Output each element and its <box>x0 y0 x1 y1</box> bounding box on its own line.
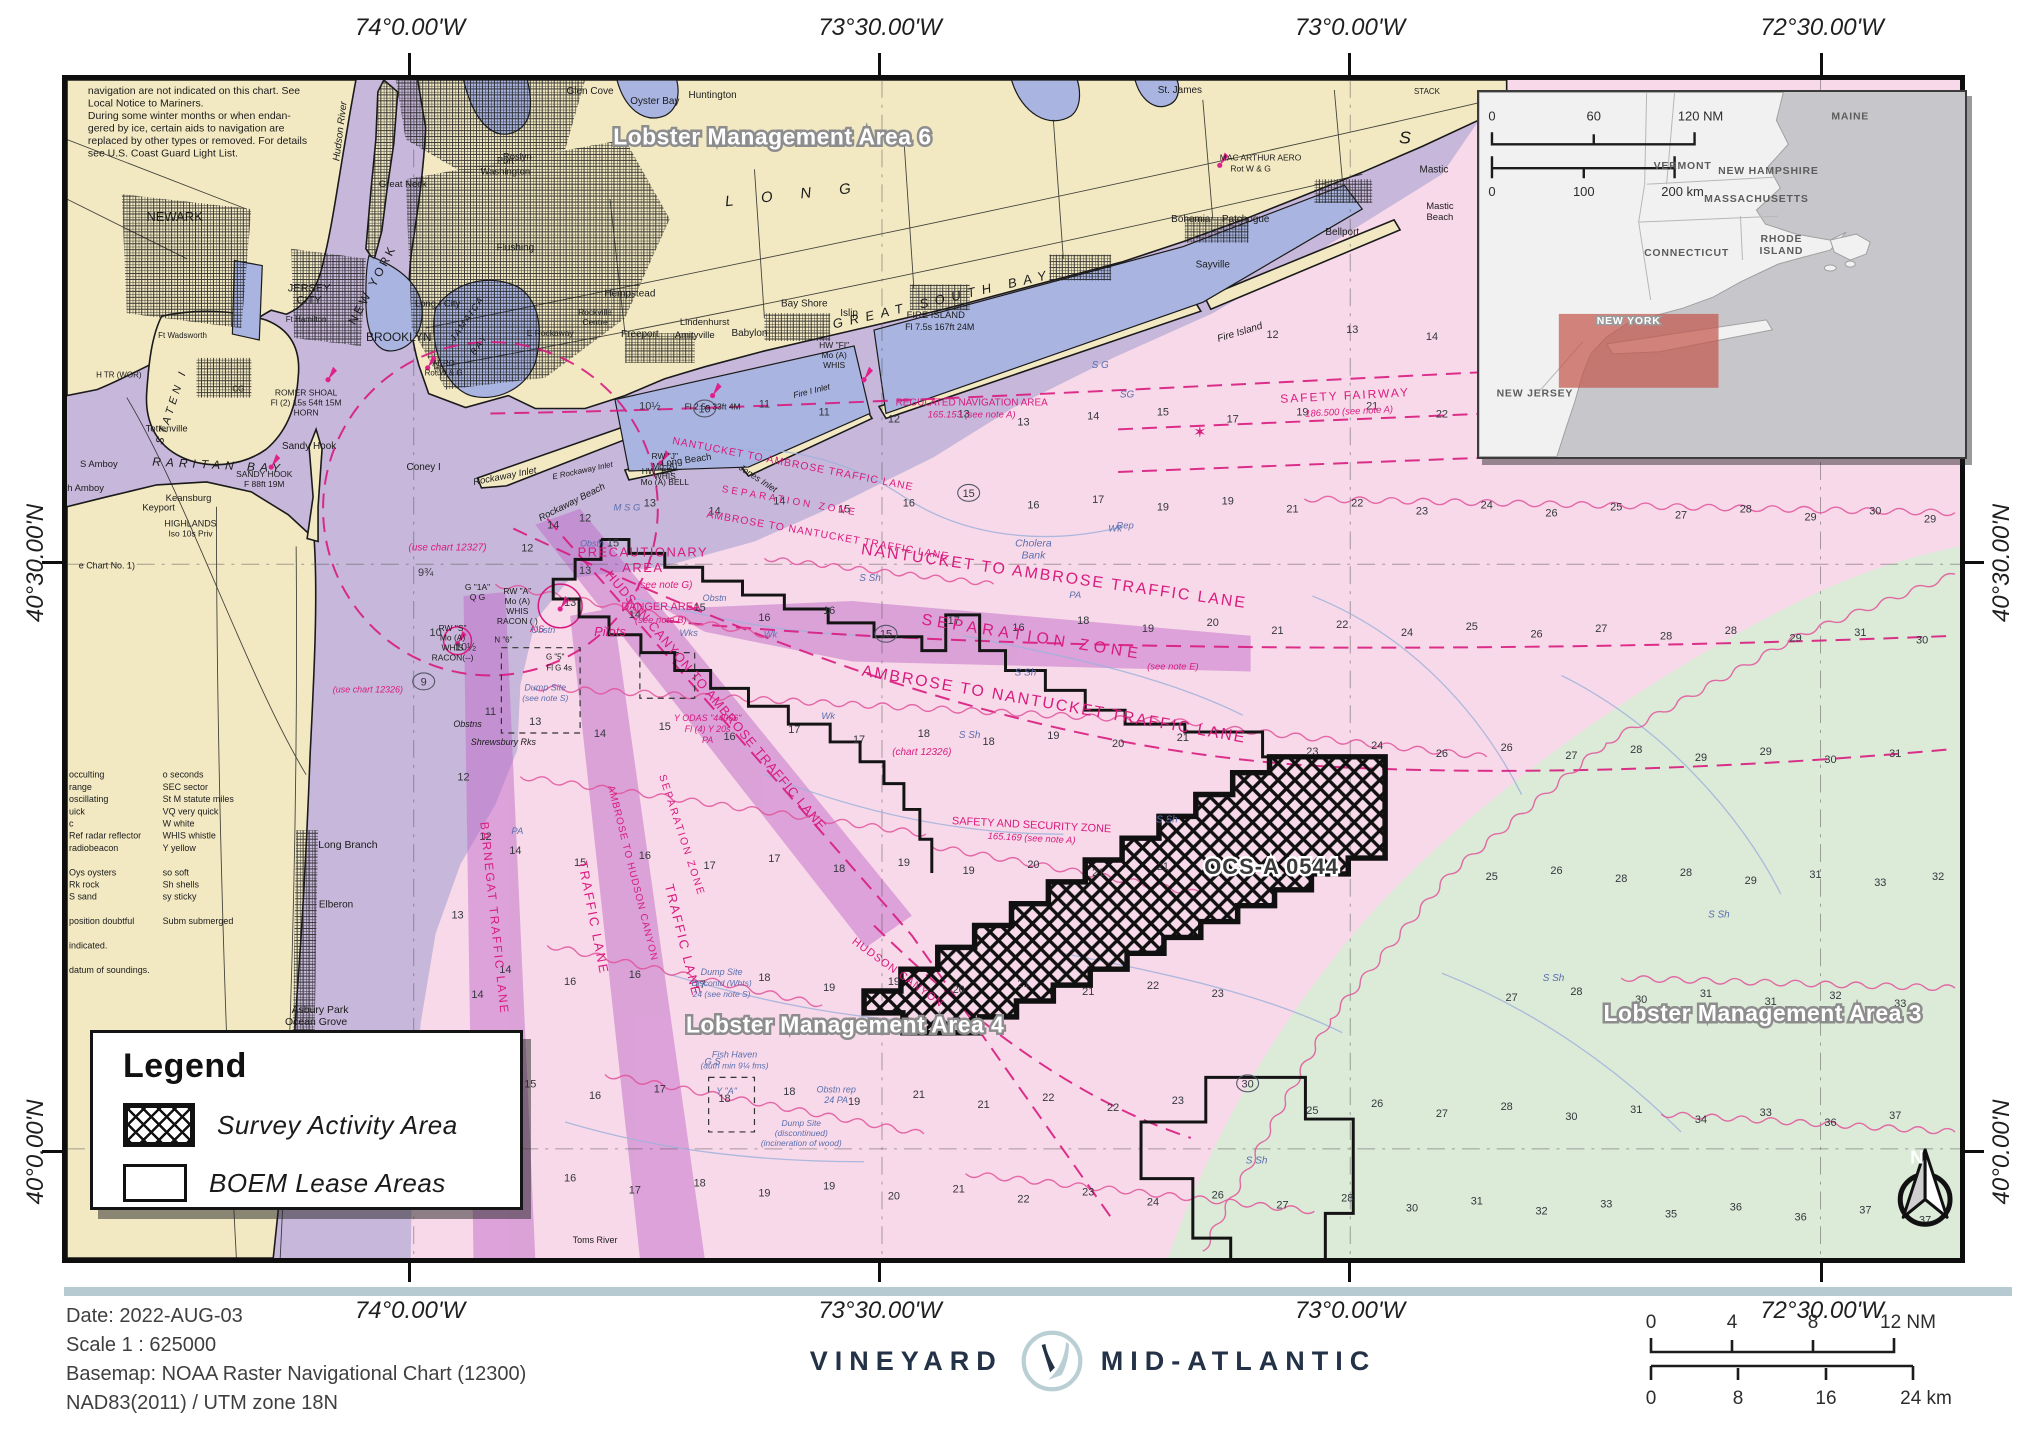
map-label: S Sh <box>959 730 981 741</box>
map-label: WHIS <box>823 360 845 370</box>
map-label: Lindenhurst <box>680 317 730 328</box>
sounding: 11 <box>485 706 496 718</box>
margin-note: Y yellow <box>163 843 197 853</box>
sounding: 14 <box>547 520 559 532</box>
inset-map: 0 60 120 NM 0 100 200 km MAINEVERMONTNEW… <box>1477 90 1967 459</box>
sounding: 28 <box>1725 625 1737 637</box>
map-label: Mo (A) <box>505 596 531 606</box>
map-label: Iso 10s Priv <box>168 529 213 539</box>
sounding: 29 <box>1790 633 1802 645</box>
sounding: 28 <box>1740 504 1752 516</box>
sounding: 19 <box>823 982 835 994</box>
sounding: 12 <box>457 772 469 784</box>
beacon-icon <box>558 606 563 611</box>
margin-note: occulting <box>69 770 104 780</box>
lon-label-bottom-2: 73°30.00'W <box>818 1297 942 1325</box>
inset-state-label: MASSACHUSETTS <box>1704 194 1809 205</box>
map-label: Perth Amboy <box>67 483 104 494</box>
chart-note-line: Local Notice to Mariners. <box>88 98 204 109</box>
map-label: Wk <box>821 711 836 722</box>
sounding: 17 <box>788 724 800 736</box>
lon-label-top-2: 73°30.00'W <box>818 14 942 42</box>
sounding: 21 <box>1157 861 1169 873</box>
map-label: Obstns <box>453 719 482 729</box>
map-label: STACK <box>1414 87 1441 96</box>
svg-text:24 km: 24 km <box>1900 1388 1952 1409</box>
map-label: Fl (4) Y 20s <box>685 724 731 734</box>
sounding: 31 <box>1809 869 1821 881</box>
map-label: Fl 2.5s 33ft 4M <box>685 401 741 411</box>
svg-text:0: 0 <box>1488 108 1495 123</box>
sounding: 30 <box>1565 1111 1577 1123</box>
sounding: 19 <box>963 865 975 877</box>
sounding: 14 <box>1426 331 1438 343</box>
beacon-icon <box>710 393 715 398</box>
map-label: Dump Site <box>524 682 566 692</box>
sounding: 31 <box>1471 1195 1483 1207</box>
map-label: (discontinued) <box>775 1128 828 1138</box>
margin-note: Oys oysters <box>69 867 117 877</box>
map-label: Toms River <box>573 1235 618 1245</box>
lat-label-right-2: 40°0.00'N <box>1988 1100 2016 1205</box>
map-label: AREA <box>622 560 663 575</box>
margin-note: uick <box>69 806 85 816</box>
map-label: Obstn <box>703 593 727 603</box>
sounding: 16 <box>629 969 641 981</box>
svg-text:100: 100 <box>1573 184 1595 199</box>
map-label: S Amboy <box>80 459 118 470</box>
sounding: 28 <box>1615 873 1627 885</box>
sounding: 22 <box>1351 498 1363 510</box>
sounding: 32 <box>1932 871 1944 883</box>
map-label: Mo (A) BELL <box>641 477 690 487</box>
margin-note: Sh shells <box>163 880 200 890</box>
sounding: 20 <box>953 984 965 996</box>
map-label: Obstn rep <box>816 1084 855 1094</box>
sounding: 16 <box>639 850 651 862</box>
margin-note: position doubtful <box>69 916 134 926</box>
sounding: 29 <box>1745 875 1757 887</box>
sounding: 18 <box>918 728 930 740</box>
chart-note-line: During some winter months or when endan- <box>88 111 291 122</box>
sounding: 37 <box>1889 1110 1901 1122</box>
sounding: 12 <box>1266 329 1278 341</box>
map-label: MAC ARTHUR AERO <box>1220 152 1302 162</box>
sounding: 17 <box>654 1083 666 1095</box>
map-label: Fl 7.5s 167ft 24M <box>905 322 974 332</box>
map-label: JERSEY <box>288 282 331 294</box>
sounding: 23 <box>1416 506 1428 518</box>
inset-state-label: ISLAND <box>1759 246 1803 257</box>
svg-text:200 km: 200 km <box>1661 184 1704 199</box>
sounding: 23 <box>1212 988 1224 1000</box>
map-label: Sandy Hook <box>282 441 336 452</box>
sounding: 36 <box>1794 1211 1806 1223</box>
map-label: Y ODAS "44066" <box>674 713 742 723</box>
margin-note: sy sticky <box>163 892 197 902</box>
survey-area-swatch <box>123 1103 195 1147</box>
map-label: Bay Shore <box>781 298 828 309</box>
map-label: S G <box>1092 360 1109 371</box>
map-label: Asbury Park <box>292 1005 350 1016</box>
map-label: Roslyn <box>503 151 532 162</box>
north-arrow-label: N <box>1910 1148 1924 1169</box>
sounding: 28 <box>1630 744 1642 756</box>
sounding: 18 <box>758 972 770 984</box>
sounding: 24 <box>1481 500 1493 512</box>
sounding: 37 <box>1859 1204 1871 1216</box>
map-label: Beach <box>1427 212 1454 223</box>
lon-label-top-4: 72°30.00'W <box>1760 14 1884 42</box>
margin-note: S sand <box>69 892 97 902</box>
margin-note: so soft <box>163 867 190 877</box>
sounding: 13 <box>579 565 591 577</box>
sounding: 13 <box>1346 324 1358 336</box>
svg-text:16: 16 <box>1815 1388 1836 1409</box>
sounding: 13 <box>644 498 656 510</box>
sounding: 11 <box>819 406 830 418</box>
sounding: 28 <box>1341 1192 1353 1204</box>
map-label: S Sh <box>1543 973 1565 984</box>
margin-note: oscillating <box>69 794 108 804</box>
sounding: 31 <box>1630 1104 1642 1116</box>
map-label: Mastic <box>1426 201 1454 212</box>
map-label: Bohemia <box>1171 214 1211 225</box>
sounding: 27 <box>1276 1199 1288 1211</box>
map-label: RACON(--) <box>432 653 474 663</box>
sounding: 13 <box>529 716 541 728</box>
svg-text:12 NM: 12 NM <box>1880 1314 1936 1333</box>
sounding: 19 <box>1222 496 1234 508</box>
lon-label-top-3: 73°0.00'W <box>1295 14 1405 42</box>
map-label: St. James <box>1158 85 1202 96</box>
map-label: HW "FI" <box>819 340 849 350</box>
sounding: 25 <box>1486 871 1498 883</box>
sounding: 27 <box>1436 1108 1448 1120</box>
map-label: Hempstead <box>604 288 655 299</box>
sounding: 12 <box>579 513 591 525</box>
map-label: Rot W & G <box>425 369 463 378</box>
sounding: 27 <box>1506 992 1518 1004</box>
map-label: HIGHLANDS <box>164 519 216 529</box>
map-label: HORN <box>294 407 319 417</box>
sounding: 34 <box>1695 1114 1707 1126</box>
sounding: 23 <box>1172 1095 1184 1107</box>
svg-text:120 NM: 120 NM <box>1678 108 1723 123</box>
map-label: (chart 12326) <box>892 747 951 758</box>
sounding: 15 <box>880 629 892 641</box>
map-label: G "1A" <box>465 582 490 592</box>
map-label: Pilots <box>594 624 626 639</box>
sounding: 30 <box>1916 635 1928 647</box>
margin-note: o seconds <box>163 770 204 780</box>
legend-title: Legend <box>123 1047 520 1086</box>
sounding: 27 <box>1675 510 1687 522</box>
svg-text:4: 4 <box>1727 1314 1738 1333</box>
map-label: Lobster Management Area 4 <box>686 1012 1004 1038</box>
map-label: AERO <box>432 359 455 368</box>
map-label: 24 PA <box>823 1095 848 1105</box>
margin-note: range <box>69 782 92 792</box>
map-label: Lobster Management Area 6 <box>613 124 931 150</box>
sounding: 15 <box>1157 406 1169 418</box>
sounding: 19 <box>758 1187 770 1199</box>
sounding: 35 <box>1665 1208 1677 1220</box>
map-label: Keyport <box>142 503 175 514</box>
sounding: 15 <box>963 488 975 500</box>
map-label: Patchogue <box>1222 214 1270 225</box>
margin-note: indicated. <box>69 941 107 951</box>
map-label: Rep <box>1116 521 1133 532</box>
map-label: Centre <box>582 317 608 327</box>
map-label: Dump Site <box>701 967 743 977</box>
map-label: BROOKLYN <box>366 330 432 344</box>
map-label: H TR (WOR) <box>96 371 142 380</box>
svg-text:60: 60 <box>1587 108 1601 123</box>
map-label: Babylon <box>731 328 767 339</box>
map-label: Q G <box>470 592 486 602</box>
map-label: Bank <box>1022 550 1047 561</box>
inset-state-label: RHODE <box>1760 234 1802 245</box>
map-label: S Sh <box>1708 910 1730 921</box>
sounding: 23 <box>1082 1186 1094 1198</box>
map-label: Mo (A) <box>821 350 847 360</box>
sounding: 9¾ <box>418 567 434 579</box>
sounding: 31 <box>1889 748 1901 760</box>
sounding: 14 <box>509 845 521 857</box>
sounding: 18 <box>694 1178 706 1190</box>
legend-item-label: Survey Activity Area <box>217 1110 458 1141</box>
margin-note: WHIS whistle <box>163 831 216 841</box>
sounding: 14 <box>594 728 606 740</box>
sounding: 16 <box>564 1173 576 1185</box>
sounding: 26 <box>1501 742 1513 754</box>
lat-label-right-1: 40°30.00'N <box>1988 504 2016 622</box>
sounding: 17 <box>1227 413 1239 425</box>
sounding: 13 <box>1017 416 1029 428</box>
sounding: 28 <box>1570 986 1582 998</box>
map-label: Ocean Grove <box>285 1017 347 1028</box>
map-label: CITY <box>297 294 323 306</box>
sounding: 22 <box>1147 980 1159 992</box>
map-label: Freeport <box>621 329 659 340</box>
map-label: Shrewsbury Rks <box>471 737 537 747</box>
sounding: 11 <box>759 399 770 411</box>
sounding: 33 <box>1760 1107 1772 1119</box>
map-label: F 88ft 19M <box>244 479 284 489</box>
legend-item-survey: Survey Activity Area <box>123 1103 520 1147</box>
map-label: OCS-A 0544 <box>1204 854 1339 879</box>
legend: Legend Survey Activity Area BOEM Lease A… <box>90 1030 523 1210</box>
map-label: (incineration of wood) <box>761 1138 842 1148</box>
sounding: 14 <box>471 989 483 1001</box>
map-label: Glen Cove <box>567 86 615 97</box>
sounding: 28 <box>1680 867 1692 879</box>
sounding: 16 <box>589 1090 601 1102</box>
sounding: 17 <box>1092 494 1104 506</box>
sounding: 22 <box>1436 408 1448 420</box>
map-label: Great Neck <box>379 179 427 190</box>
map-label: (use chart 12326) <box>333 684 403 694</box>
margin-note: radiobeacon <box>69 843 118 853</box>
map-label: NEWARK <box>146 209 203 224</box>
sounding: 16 <box>903 498 915 510</box>
map-label: Obstn <box>531 625 555 635</box>
sounding: 20 <box>888 1190 900 1202</box>
map-label: RACON ( ) <box>497 616 538 626</box>
sounding: 12 <box>521 542 533 554</box>
map-label: Wk <box>764 630 779 641</box>
map-label: 24 (see note S) <box>692 989 751 999</box>
map-label: WHIS <box>506 606 528 616</box>
sounding: 17 <box>629 1185 641 1197</box>
sounding: 29 <box>1695 752 1707 764</box>
map-label: Elberon <box>319 900 353 911</box>
map-label: M S G <box>614 503 641 514</box>
sounding: 18 <box>983 736 995 748</box>
sounding: 21 <box>1092 867 1104 879</box>
map-label: Rot W & G <box>1230 163 1270 173</box>
sounding: 13 <box>564 597 576 609</box>
map-label: PA <box>511 826 523 837</box>
sounding: 27 <box>1595 623 1607 635</box>
sounding: 18 <box>1077 615 1089 627</box>
map-label: Mastic <box>1420 164 1449 175</box>
sounding: 30 <box>1242 1078 1254 1090</box>
sounding: 15 <box>659 721 671 733</box>
map-label: PA <box>1069 590 1081 601</box>
sounding: 21 <box>1017 978 1029 990</box>
sounding: 24 <box>1401 627 1413 639</box>
page: 74°0.00'W 73°30.00'W 73°0.00'W 72°30.00'… <box>0 0 2036 1440</box>
map-label: S Sh <box>1156 814 1178 825</box>
chart-note-line: navigation are not indicated on this cha… <box>88 86 300 97</box>
sounding: 31 <box>1854 627 1866 639</box>
svg-text:8: 8 <box>1733 1388 1744 1409</box>
sounding: 28 <box>1660 631 1672 643</box>
sounding: 22 <box>1017 1193 1029 1205</box>
map-label: e Chart No. 1) <box>79 560 135 570</box>
sounding: 29 <box>1804 512 1816 524</box>
map-label: Cholera <box>1015 538 1052 549</box>
margin-note: Ref radar reflector <box>69 831 141 841</box>
map-label: 165.153 (see note A) <box>928 409 1016 420</box>
sounding: 21 <box>1286 504 1298 516</box>
inset-state-label: MAINE <box>1831 111 1869 122</box>
sounding: 25 <box>1466 621 1478 633</box>
sounding: 31 <box>1700 988 1712 1000</box>
sounding: 20 <box>1027 859 1039 871</box>
sounding: 16 <box>823 605 835 617</box>
sounding: 33 <box>1600 1198 1612 1210</box>
map-label: Sayville <box>1196 260 1231 271</box>
map-label: PA <box>702 735 713 745</box>
margin-note: datum of soundings. <box>69 965 150 975</box>
sounding: 23 <box>1306 746 1318 758</box>
sounding: 30 <box>1824 754 1836 766</box>
sounding: 26 <box>1212 1189 1224 1201</box>
margin-note: c <box>69 819 74 829</box>
map-label: ✶ <box>1193 424 1206 441</box>
sounding: 19 <box>823 1181 835 1193</box>
inset-state-label: NEW YORK <box>1597 316 1661 327</box>
svg-text:0: 0 <box>1646 1314 1657 1333</box>
map-label: RW "A" <box>503 586 531 596</box>
margin-note: St M statute miles <box>163 794 235 804</box>
map-label: Bellport <box>1325 227 1359 238</box>
sounding: 29 <box>1924 514 1936 526</box>
map-label: Long I City <box>415 298 460 309</box>
map-label: Huntington <box>689 90 737 101</box>
sounding: 19 <box>1157 502 1169 514</box>
sounding: 26 <box>1550 865 1562 877</box>
map-label: Oyster Bay <box>630 96 679 107</box>
map-label: Keansburg <box>166 493 212 504</box>
sounding: 19 <box>848 1096 860 1108</box>
sounding: 21 <box>953 1184 965 1196</box>
sounding: 19 <box>898 857 910 869</box>
margin-note: W white <box>163 819 195 829</box>
sounding: 19 <box>1047 730 1059 742</box>
svg-text:8: 8 <box>1808 1314 1819 1333</box>
sounding: 19 <box>1142 623 1154 635</box>
map-label: Washington <box>481 166 531 177</box>
sounding: 36 <box>1730 1201 1742 1213</box>
svg-text:0: 0 <box>1488 184 1495 199</box>
sounding: 27 <box>1565 750 1577 762</box>
map-label: G "5" <box>546 653 565 662</box>
sounding: 10½ <box>639 401 660 413</box>
map-label: G S <box>704 1056 721 1067</box>
map-label: S Sh <box>1015 667 1037 678</box>
map-label: (see note E) <box>1147 662 1199 673</box>
inset-state-label: CONNECTICUT <box>1644 248 1729 259</box>
sounding: 13 <box>451 910 463 922</box>
map-label: Lobster Management Area 3 <box>1604 1000 1922 1026</box>
sounding: 30 <box>1406 1202 1418 1214</box>
map-label: Long Branch <box>318 840 378 851</box>
map-label: ROMER SHOAL <box>275 388 338 398</box>
sounding: 17 <box>768 853 780 865</box>
map-label: S Sh <box>859 573 881 584</box>
sounding: 9 <box>421 676 427 688</box>
sounding: 26 <box>1530 629 1542 641</box>
inset-canvas: 0 60 120 NM 0 100 200 km MAINEVERMONTNEW… <box>1479 92 1965 457</box>
logo-text-right: MID-ATLANTIC <box>1101 1346 1376 1377</box>
sounding: 21 <box>978 1099 990 1111</box>
map-label: Discontd (Whts) <box>692 978 752 988</box>
sounding: 12 <box>888 413 900 425</box>
margin-note: Rk rock <box>69 880 100 890</box>
sounding: 14 <box>1087 410 1099 422</box>
map-label: (see note G) <box>637 580 692 591</box>
sounding: 29 <box>1760 746 1772 758</box>
legend-item-boem: BOEM Lease Areas <box>123 1164 520 1202</box>
map-label: S <box>1399 128 1411 148</box>
map-label: Ft Wadsworth <box>158 331 207 340</box>
map-scalebar: 0 4 8 12 NM 0 8 16 24 km <box>1636 1314 2006 1410</box>
map-label: REGULATED NAVIGATION AREA <box>896 398 1049 409</box>
map-label: WHIS <box>442 643 464 653</box>
map-label: (see note S) <box>522 693 568 703</box>
inset-state-label: NEW HAMPSHIRE <box>1718 166 1819 177</box>
map-label: RW "S" <box>439 623 467 633</box>
map-label: Mo (A) <box>440 633 466 643</box>
sounding: 33 <box>1874 877 1886 889</box>
boem-lease-swatch <box>123 1164 187 1202</box>
sounding: 32 <box>1535 1205 1547 1217</box>
margin-note: SEC sector <box>163 782 208 792</box>
